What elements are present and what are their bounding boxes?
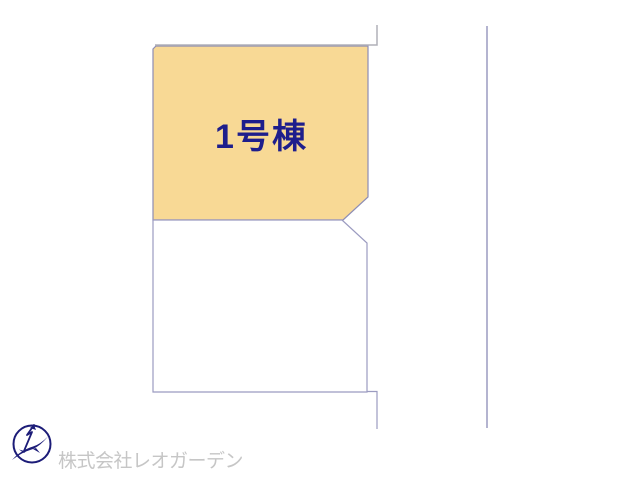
- plot-map-page: 1号棟 株式会社レオガーデン: [0, 0, 640, 480]
- lot-2-parcel: [153, 220, 367, 392]
- plot-map-drawing: [0, 0, 640, 480]
- boundary-top-step-line: [155, 25, 377, 45]
- lot-1-parcel: [153, 46, 368, 220]
- leo-garden-logo-icon: [10, 421, 56, 467]
- company-name-watermark: 株式会社レオガーデン: [58, 446, 243, 473]
- boundary-bottom-step-line: [367, 392, 377, 430]
- logo-circle: [14, 426, 51, 463]
